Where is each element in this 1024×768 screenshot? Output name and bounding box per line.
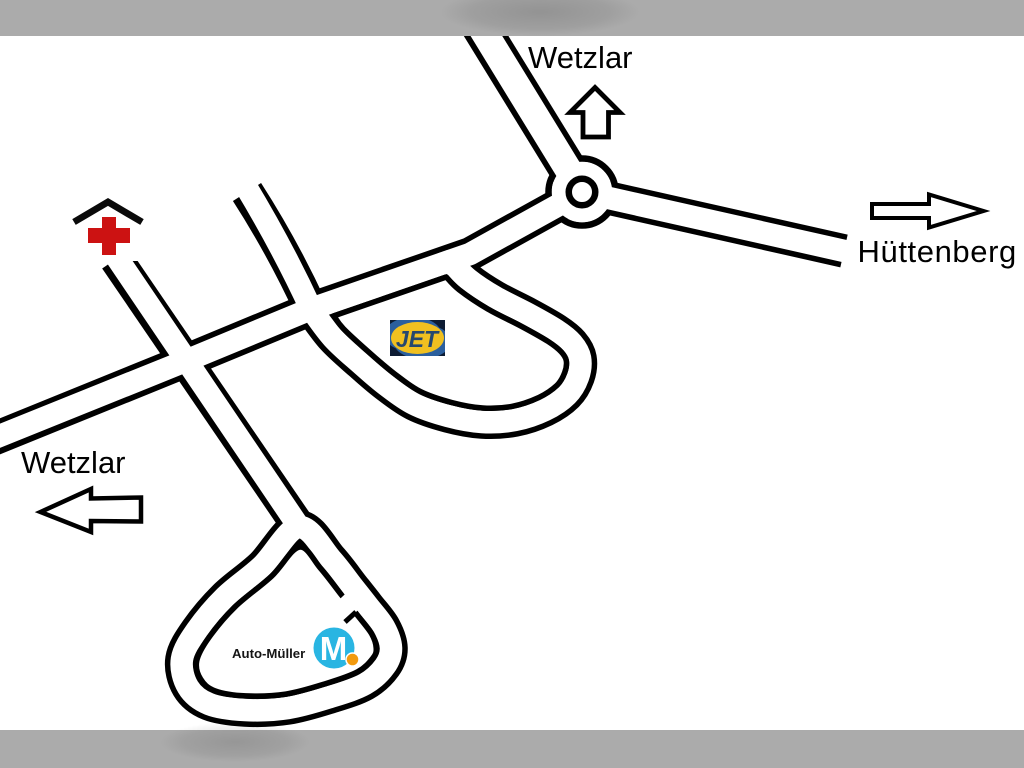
svg-text:Wetzlar: Wetzlar: [21, 445, 126, 480]
svg-text:Auto-Müller: Auto-Müller: [232, 646, 305, 661]
svg-text:Wetzlar: Wetzlar: [528, 40, 633, 75]
svg-text:JET: JET: [396, 326, 440, 352]
svg-text:Hüttenberg: Hüttenberg: [858, 234, 1017, 269]
svg-text:M: M: [320, 630, 348, 667]
